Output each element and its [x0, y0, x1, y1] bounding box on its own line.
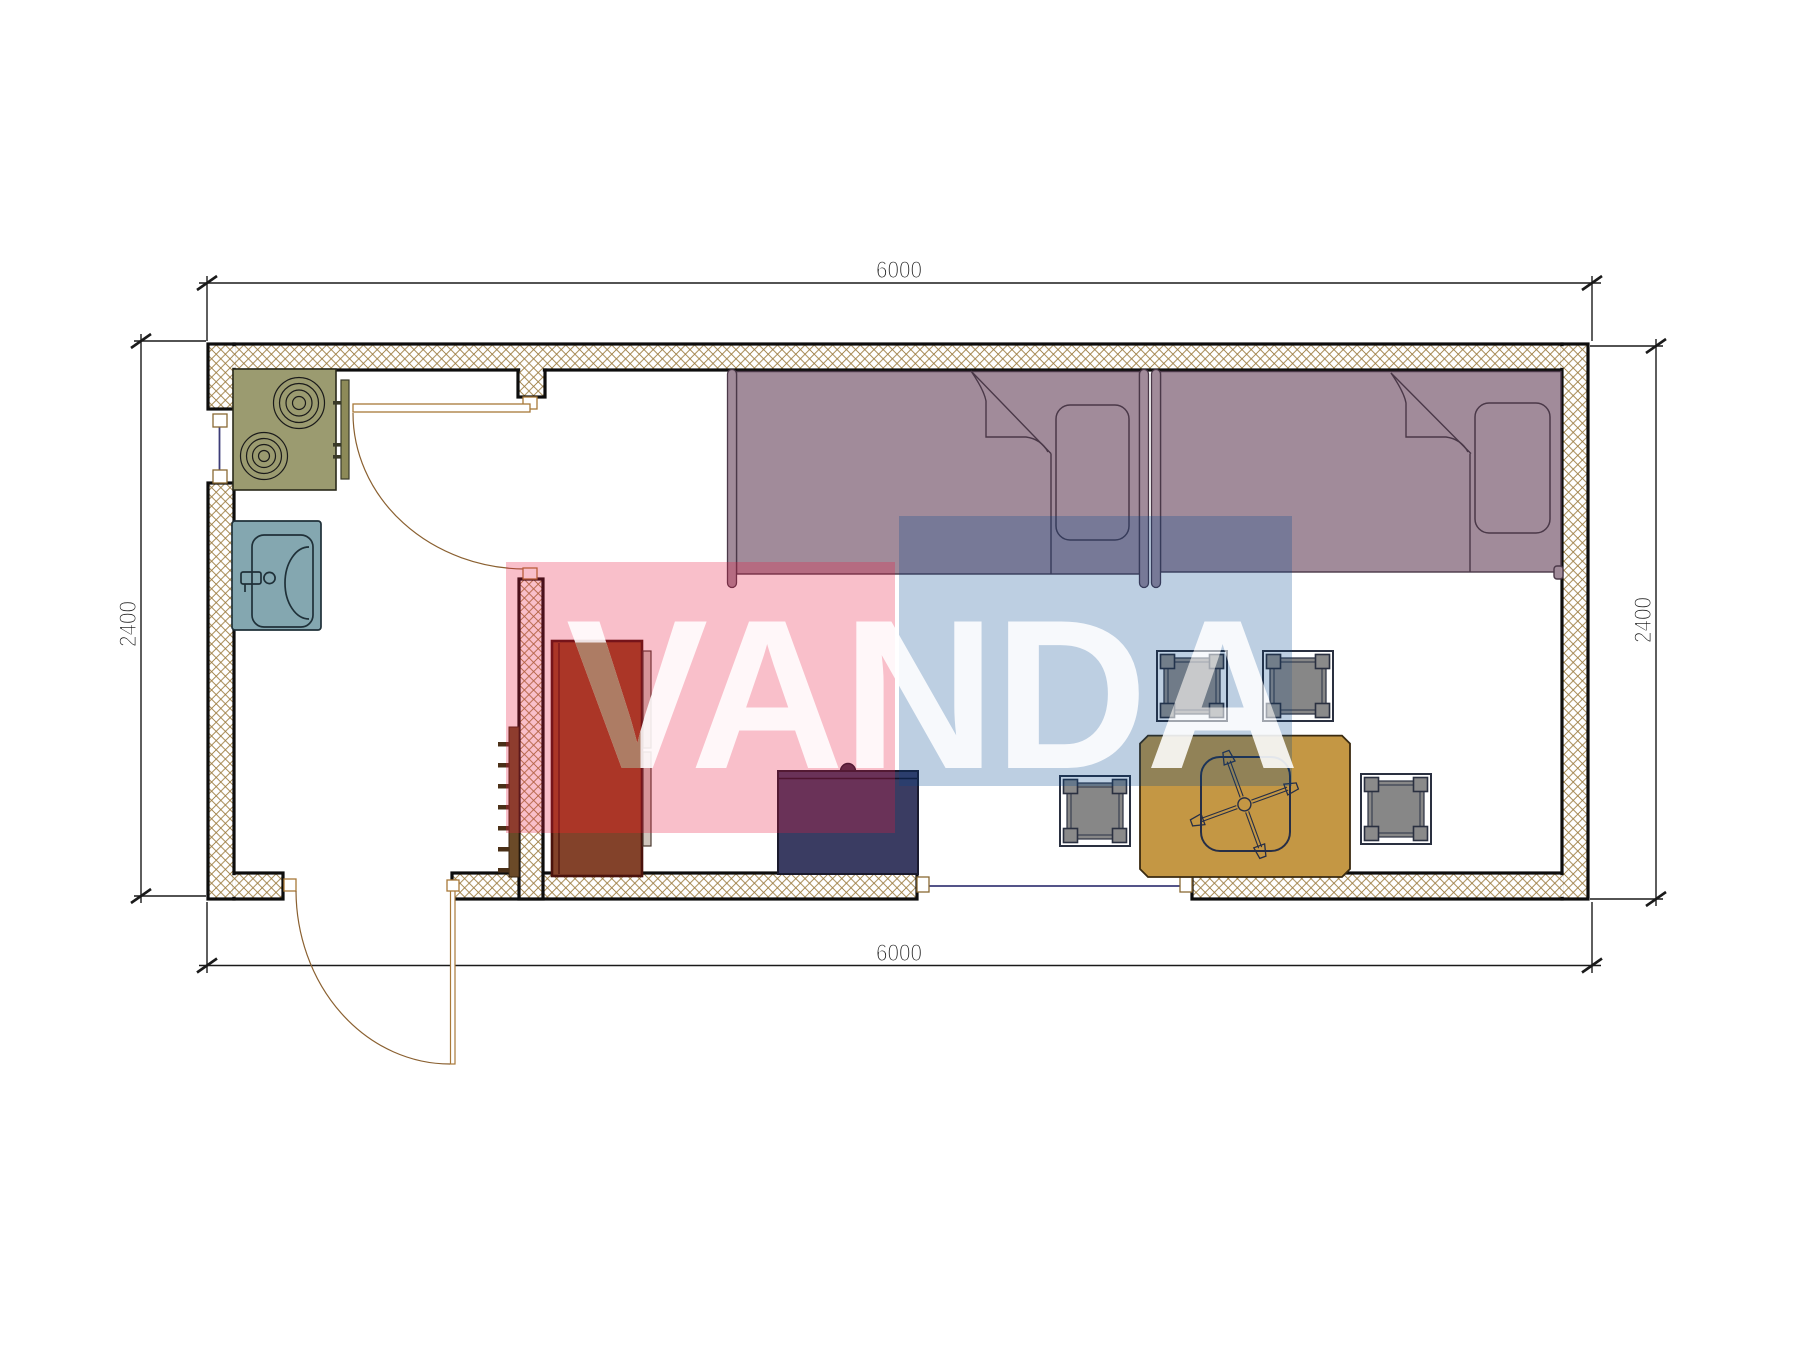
- svg-text:2400: 2400: [115, 601, 142, 647]
- svg-text:2400: 2400: [1630, 597, 1657, 643]
- svg-text:6000: 6000: [876, 257, 922, 284]
- svg-text:6000: 6000: [876, 940, 922, 967]
